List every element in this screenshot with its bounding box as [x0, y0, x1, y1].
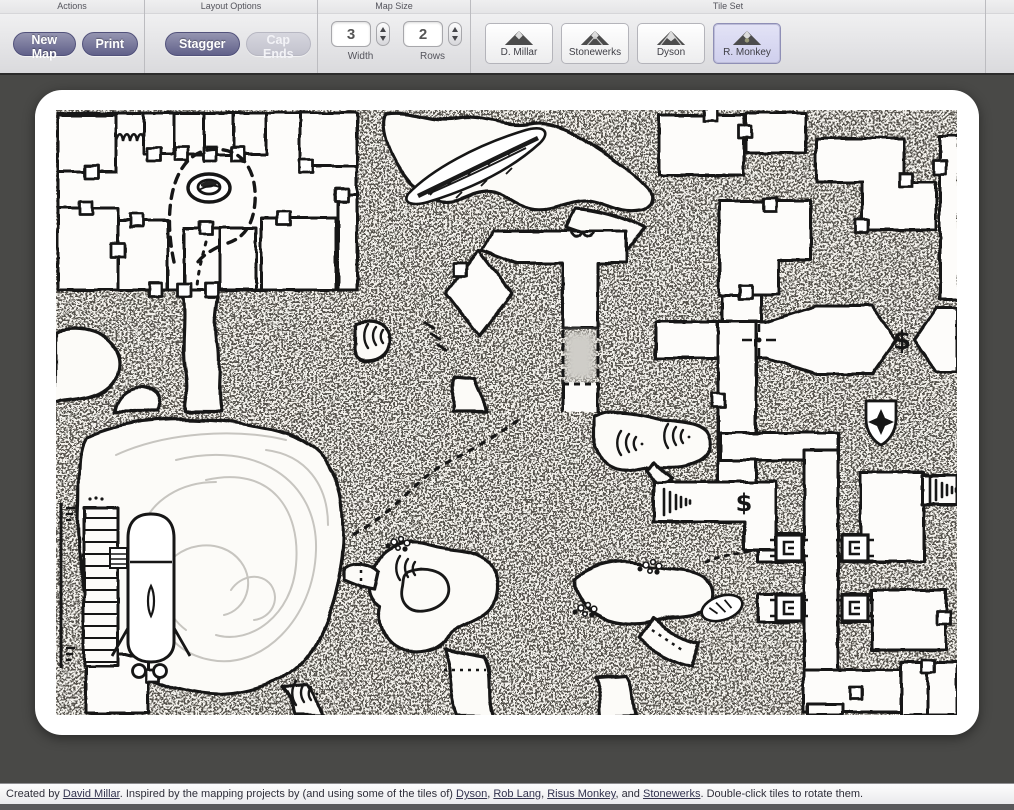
link-david-millar[interactable]: David Millar	[63, 788, 120, 800]
secret-shaft	[565, 332, 595, 380]
cap-ends-button[interactable]: Cap Ends	[246, 32, 311, 56]
width-control: Width	[331, 21, 390, 62]
tileset-mountain-icon	[579, 29, 611, 46]
tileset-mountain-icon	[503, 29, 535, 46]
link-dyson[interactable]: Dyson	[456, 788, 487, 800]
tileset-mountain-icon	[731, 29, 763, 46]
treasure-marker: $	[893, 326, 911, 356]
portcullis-door	[770, 535, 808, 561]
width-input[interactable]	[331, 21, 371, 47]
tileset-button-r-monkey[interactable]: R. Monkey	[713, 23, 781, 64]
print-button[interactable]: Print	[82, 32, 138, 56]
tileset-button-label: Stonewerks	[569, 47, 621, 58]
tileset-button-label: R. Monkey	[723, 47, 771, 58]
toolbar: Actions New Map Print Layout Options Sta…	[0, 0, 1014, 75]
map-card: $ $	[35, 90, 979, 735]
tileset-button-label: Dyson	[657, 47, 685, 58]
toolbar-section-tile-set: Tile Set D. Millar Stonewerks	[471, 0, 986, 73]
treasure-marker: $	[736, 489, 753, 517]
rows-label: Rows	[420, 51, 445, 62]
toolbar-filler	[986, 0, 1014, 73]
width-stepper[interactable]	[376, 22, 390, 46]
portcullis-door	[836, 535, 874, 561]
section-header-actions: Actions	[0, 0, 144, 14]
dungeon-map-canvas[interactable]: $ $	[56, 110, 957, 715]
tileset-mountain-icon	[655, 29, 687, 46]
footer: Created by David Millar. Inspired by the…	[0, 783, 1014, 810]
link-rob-lang[interactable]: Rob Lang	[493, 788, 541, 800]
stepper-down-icon	[380, 36, 386, 41]
stepper-up-icon	[380, 27, 386, 32]
tileset-button-d-millar[interactable]: D. Millar	[485, 23, 553, 64]
portcullis-door	[770, 595, 808, 621]
rows-stepper[interactable]	[448, 22, 462, 46]
pit	[188, 174, 230, 202]
tileset-button-dyson[interactable]: Dyson	[637, 23, 705, 64]
portcullis-door	[836, 595, 874, 621]
stepper-down-icon	[452, 36, 458, 41]
toolbar-section-map-size: Map Size Width	[318, 0, 471, 73]
stepper-up-icon	[452, 27, 458, 32]
section-header-layout-options: Layout Options	[145, 0, 317, 14]
tileset-button-label: D. Millar	[501, 47, 538, 58]
tileset-button-stonewerks[interactable]: Stonewerks	[561, 23, 629, 64]
app-window: Actions New Map Print Layout Options Sta…	[0, 0, 1014, 810]
section-header-tile-set: Tile Set	[471, 0, 985, 14]
new-map-button[interactable]: New Map	[13, 32, 76, 56]
footer-credit: Created by David Millar. Inspired by the…	[0, 783, 1014, 804]
section-header-map-size: Map Size	[318, 0, 470, 14]
toolbar-section-actions: Actions New Map Print	[0, 0, 145, 73]
stagger-button[interactable]: Stagger	[165, 32, 240, 56]
toolbar-section-layout-options: Layout Options Stagger Cap Ends	[145, 0, 318, 73]
link-risus-monkey[interactable]: Risus Monkey	[547, 788, 615, 800]
link-stonewerks[interactable]: Stonewerks	[643, 788, 700, 800]
window-bottom-strip	[0, 804, 1014, 810]
width-label: Width	[348, 51, 374, 62]
rows-control: Rows	[403, 21, 462, 62]
rows-input[interactable]	[403, 21, 443, 47]
